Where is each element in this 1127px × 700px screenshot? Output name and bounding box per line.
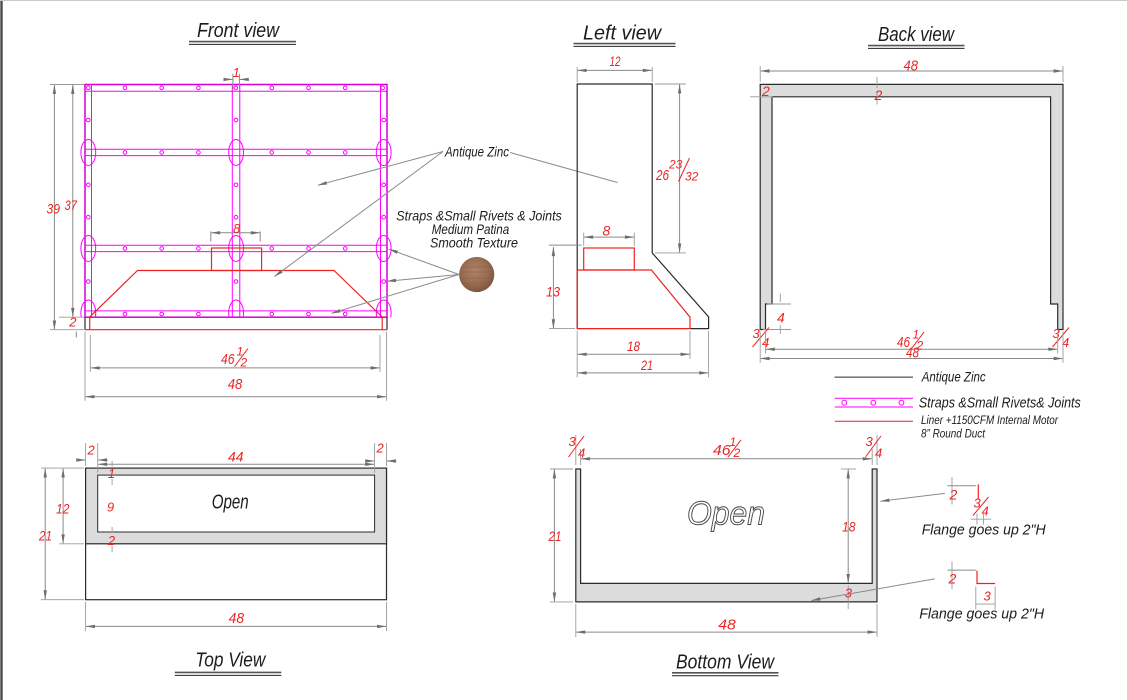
svg-text:12: 12: [610, 53, 621, 69]
svg-text:44: 44: [228, 449, 244, 465]
svg-text:Left view: Left view: [583, 23, 663, 45]
svg-text:Top View: Top View: [195, 650, 266, 672]
svg-text:21: 21: [640, 357, 653, 373]
svg-text:1: 1: [108, 466, 115, 481]
svg-text:Smooth Texture: Smooth Texture: [430, 235, 518, 251]
svg-text:48: 48: [904, 58, 919, 75]
svg-text:2: 2: [68, 314, 77, 329]
svg-text:13: 13: [546, 284, 560, 300]
svg-text:39: 39: [47, 201, 61, 217]
svg-text:12: 12: [56, 501, 70, 517]
svg-text:8: 8: [233, 221, 241, 236]
svg-text:Liner +1150CFM Internal Motor: Liner +1150CFM Internal Motor: [921, 413, 1059, 427]
svg-text:18: 18: [842, 519, 856, 535]
svg-text:2: 2: [761, 83, 770, 99]
svg-text:Flange goes up 2"H: Flange goes up 2"H: [919, 606, 1044, 623]
svg-text:23: 23: [668, 158, 683, 172]
svg-text:2: 2: [874, 87, 883, 103]
svg-text:21: 21: [38, 528, 52, 544]
svg-text:2: 2: [240, 356, 248, 370]
svg-text:4: 4: [578, 446, 585, 461]
svg-text:Open: Open: [687, 495, 765, 532]
svg-text:2: 2: [107, 533, 116, 548]
svg-text:3: 3: [984, 589, 992, 604]
svg-text:46: 46: [221, 351, 235, 368]
svg-text:3: 3: [569, 434, 577, 449]
svg-text:4: 4: [777, 310, 785, 326]
svg-text:Back view: Back view: [878, 24, 955, 46]
svg-text:8” Round Duct: 8” Round Duct: [921, 426, 986, 440]
svg-text:Straps &Small Rivets& Joints: Straps &Small Rivets& Joints: [919, 396, 1081, 412]
svg-text:Flange goes up 2"H: Flange goes up 2"H: [922, 522, 1046, 539]
svg-text:3: 3: [866, 434, 874, 449]
svg-text:32: 32: [685, 170, 699, 184]
svg-text:8: 8: [603, 223, 611, 239]
svg-text:2: 2: [733, 446, 741, 460]
svg-text:48: 48: [718, 617, 736, 634]
svg-text:Bottom View: Bottom View: [676, 652, 775, 674]
svg-text:2: 2: [87, 442, 96, 457]
svg-text:1: 1: [233, 65, 240, 80]
svg-text:Antique Zinc: Antique Zinc: [444, 144, 509, 160]
svg-text:Front view: Front view: [197, 20, 280, 42]
svg-text:Antique Zinc: Antique Zinc: [921, 368, 986, 384]
svg-text:48: 48: [228, 376, 243, 393]
svg-text:2: 2: [948, 571, 957, 587]
svg-text:21: 21: [548, 528, 562, 544]
svg-text:4: 4: [982, 504, 989, 519]
svg-text:48: 48: [906, 345, 920, 362]
svg-text:37: 37: [65, 197, 78, 213]
svg-text:2: 2: [949, 487, 958, 503]
svg-text:48: 48: [229, 610, 245, 627]
svg-text:9: 9: [107, 500, 114, 515]
svg-text:Open: Open: [212, 491, 249, 513]
svg-text:3: 3: [974, 496, 982, 511]
svg-text:26: 26: [655, 167, 669, 184]
svg-text:4: 4: [875, 446, 882, 461]
svg-text:18: 18: [627, 338, 640, 354]
svg-text:2: 2: [376, 440, 385, 455]
